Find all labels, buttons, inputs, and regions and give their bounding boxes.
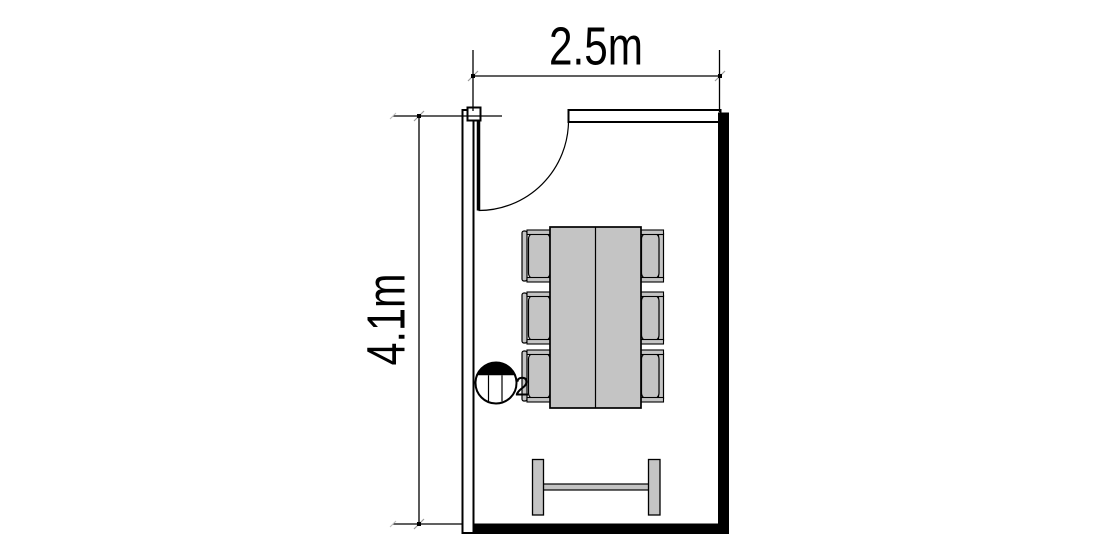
- width-tick-left: [471, 74, 475, 78]
- conference-table: [550, 227, 641, 408]
- chair-right-2: [641, 292, 664, 344]
- door-jamb: [468, 108, 481, 121]
- bench: [533, 460, 661, 516]
- top-wall: [569, 110, 721, 122]
- chair-right-3: [641, 350, 664, 402]
- circle-symbol: [476, 363, 517, 404]
- floorplan-canvas: 2 2.5m: [0, 0, 1096, 548]
- width-dimension-label: 2.5m: [549, 17, 643, 77]
- bench-crossbar: [534, 484, 659, 490]
- height-tick-top: [417, 114, 421, 118]
- height-dimension-label: 4.1m: [357, 274, 417, 366]
- door-swing-arc: [479, 121, 569, 211]
- door: [468, 108, 569, 211]
- chair-left-1: [522, 230, 551, 282]
- right-wall: [718, 113, 729, 535]
- symbol-label: 2: [515, 372, 530, 402]
- bottom-wall: [474, 524, 729, 535]
- bench-left-post: [533, 460, 544, 516]
- chair-left-2: [522, 292, 551, 344]
- height-tick-bottom: [417, 522, 421, 526]
- symbol-filled-segment: [477, 363, 515, 376]
- floorplan-drawing: 2 2.5m: [0, 0, 1096, 548]
- width-dimension: 2.5m: [468, 17, 725, 113]
- chair-right-1: [641, 230, 664, 282]
- width-tick-right: [718, 74, 722, 78]
- left-wall: [463, 110, 474, 533]
- bench-right-post: [649, 460, 661, 516]
